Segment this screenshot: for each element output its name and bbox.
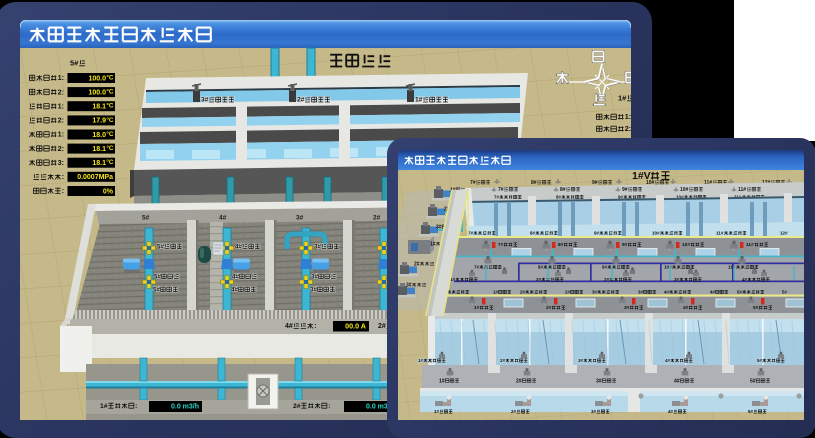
svg-text:4#: 4#: [665, 358, 671, 363]
svg-text:°C: °C: [106, 158, 114, 166]
svg-text:1#: 1#: [439, 378, 445, 384]
svg-text:8#: 8#: [558, 242, 564, 248]
svg-text:10#: 10#: [664, 265, 672, 270]
svg-text:7#: 7#: [468, 231, 474, 236]
svg-text:5#: 5#: [750, 378, 756, 384]
svg-text:2#: 2#: [500, 358, 506, 363]
svg-text:2#: 2#: [516, 378, 522, 384]
svg-text:3#: 3#: [674, 277, 680, 282]
svg-text:2#: 2#: [536, 277, 542, 282]
svg-text:5#: 5#: [757, 358, 763, 363]
svg-text:2#: 2#: [511, 409, 517, 414]
svg-text:1:: 1:: [625, 112, 631, 121]
svg-text:4#: 4#: [668, 409, 674, 414]
svg-text:4#: 4#: [674, 378, 680, 384]
svg-text:2#: 2#: [565, 289, 571, 294]
svg-text:9#: 9#: [602, 265, 608, 270]
svg-text:2#: 2#: [297, 97, 305, 104]
svg-text:3#: 3#: [310, 286, 317, 293]
svg-text:3#: 3#: [578, 358, 584, 363]
svg-text:0%: 0%: [103, 188, 114, 195]
svg-text:4#: 4#: [683, 305, 689, 311]
svg-text:4#: 4#: [235, 243, 242, 250]
svg-text::: :: [135, 403, 137, 410]
svg-text:3:: 3:: [58, 158, 64, 167]
svg-text:5#: 5#: [737, 289, 743, 294]
svg-text:1#: 1#: [474, 305, 480, 311]
svg-text:1#: 1#: [434, 409, 440, 414]
svg-text:10#: 10#: [652, 231, 660, 236]
svg-text:7#: 7#: [470, 180, 476, 186]
svg-text:8#: 8#: [531, 180, 537, 186]
svg-text:5#: 5#: [153, 286, 160, 293]
svg-text:5#: 5#: [70, 58, 79, 67]
svg-text:3#: 3#: [314, 243, 321, 250]
svg-text:5#: 5#: [154, 273, 161, 280]
svg-text:7#: 7#: [494, 195, 500, 200]
svg-text:2#: 2#: [604, 277, 610, 282]
svg-text:°C: °C: [106, 116, 114, 124]
svg-text:8#: 8#: [530, 231, 536, 236]
svg-text:0.0 m3/h: 0.0 m3/h: [171, 404, 199, 411]
svg-text:4#: 4#: [742, 277, 748, 282]
svg-text:°C: °C: [106, 73, 114, 81]
svg-text:11#: 11#: [738, 187, 746, 193]
svg-text:5#: 5#: [157, 243, 164, 250]
svg-text:5#: 5#: [142, 214, 150, 221]
svg-text:1#: 1#: [418, 358, 424, 363]
svg-text:2:: 2:: [58, 116, 64, 125]
svg-text:1#: 1#: [430, 241, 436, 247]
svg-text:3#: 3#: [624, 305, 630, 311]
svg-text:3#: 3#: [296, 214, 304, 221]
svg-text:7#: 7#: [474, 265, 480, 270]
svg-text:12#: 12#: [780, 231, 788, 236]
svg-text:3#: 3#: [591, 409, 597, 414]
svg-text:9#: 9#: [622, 242, 628, 248]
svg-text:1:: 1:: [58, 130, 64, 139]
svg-text:5#: 5#: [782, 289, 788, 294]
svg-text:8#: 8#: [538, 265, 544, 270]
svg-text:5#: 5#: [753, 305, 759, 311]
svg-text:3#: 3#: [406, 282, 412, 288]
svg-text:17.9: 17.9: [92, 118, 106, 125]
svg-text:00.0 A: 00.0 A: [345, 321, 366, 330]
svg-text:4#: 4#: [285, 323, 293, 330]
svg-text:°C: °C: [106, 88, 114, 96]
svg-text:2#: 2#: [293, 403, 301, 410]
svg-text:9#: 9#: [594, 231, 600, 236]
svg-text::: :: [328, 403, 330, 410]
svg-text:100.0: 100.0: [88, 90, 106, 97]
svg-text:2:: 2:: [625, 124, 631, 133]
svg-text:3#: 3#: [638, 289, 644, 294]
svg-text:2#: 2#: [546, 305, 552, 311]
svg-text:10#: 10#: [682, 242, 690, 248]
svg-text:11#: 11#: [746, 242, 754, 248]
svg-text:2#: 2#: [520, 289, 526, 294]
svg-text:11#: 11#: [716, 231, 724, 236]
svg-text:1:: 1:: [58, 101, 64, 110]
svg-text:8#: 8#: [560, 187, 566, 193]
svg-text:0.0007MPa: 0.0007MPa: [77, 174, 113, 181]
svg-text:2#: 2#: [378, 323, 386, 330]
svg-text:2#: 2#: [373, 214, 381, 221]
svg-text:3#: 3#: [596, 378, 602, 384]
svg-text:4#: 4#: [219, 214, 227, 221]
svg-text:2:: 2:: [58, 144, 64, 153]
svg-text:3#: 3#: [201, 97, 209, 104]
svg-text:100.0: 100.0: [88, 75, 106, 82]
svg-text:°C: °C: [106, 130, 114, 138]
svg-text:3#: 3#: [592, 289, 598, 294]
svg-text:10#: 10#: [680, 187, 689, 193]
svg-text:8#: 8#: [556, 195, 562, 200]
svg-text:1#: 1#: [493, 289, 499, 294]
svg-text:18.1: 18.1: [92, 104, 106, 111]
svg-text:7#: 7#: [498, 242, 504, 248]
svg-text:4#: 4#: [710, 289, 716, 294]
svg-text:2:: 2:: [58, 87, 64, 96]
svg-text::: :: [314, 323, 316, 330]
svg-text::: :: [62, 172, 64, 181]
svg-text:7#: 7#: [498, 187, 504, 193]
svg-text:5#: 5#: [748, 409, 754, 414]
svg-text:18.0: 18.0: [92, 132, 106, 139]
svg-text::: :: [62, 186, 64, 195]
svg-text:1#: 1#: [100, 403, 108, 410]
svg-text:1#: 1#: [618, 94, 627, 103]
svg-text:1#: 1#: [415, 97, 423, 104]
svg-text:4#: 4#: [232, 273, 239, 280]
svg-text:4#: 4#: [231, 286, 238, 293]
svg-text:3#: 3#: [311, 273, 318, 280]
svg-text:9#: 9#: [592, 180, 598, 186]
svg-text:°C: °C: [106, 102, 114, 110]
svg-text:9#: 9#: [622, 187, 628, 193]
svg-text:2#: 2#: [414, 261, 420, 267]
svg-text:1:: 1:: [58, 73, 64, 82]
svg-text:18.1: 18.1: [92, 160, 106, 167]
svg-text:4#: 4#: [664, 289, 670, 294]
svg-text:°C: °C: [106, 144, 114, 152]
svg-text:18.1: 18.1: [92, 146, 106, 153]
